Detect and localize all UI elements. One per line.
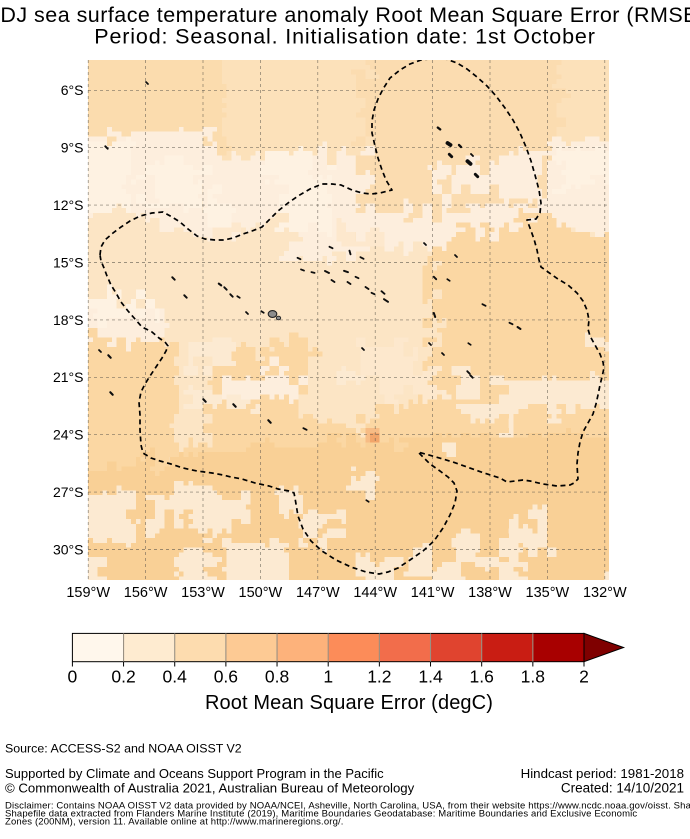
svg-text:0.4: 0.4	[163, 666, 188, 686]
svg-text:Zones (200NM), version 11. Ava: Zones (200NM), version 11. Available onl…	[5, 816, 344, 827]
svg-text:0.2: 0.2	[111, 666, 135, 686]
svg-text:138°W: 138°W	[468, 585, 512, 601]
svg-text:147°W: 147°W	[296, 585, 340, 601]
svg-text:132°W: 132°W	[583, 585, 627, 601]
svg-text:0.8: 0.8	[265, 666, 289, 686]
svg-text:Created: 14/10/2021: Created: 14/10/2021	[561, 780, 684, 795]
svg-text:1.8: 1.8	[521, 666, 545, 686]
svg-text:18°S: 18°S	[53, 312, 84, 328]
svg-text:27°S: 27°S	[53, 484, 84, 500]
svg-text:Supported by Climate and Ocean: Supported by Climate and Oceans Support …	[5, 766, 384, 781]
svg-text:30°S: 30°S	[53, 541, 84, 557]
svg-text:1.4: 1.4	[418, 666, 443, 686]
svg-text:159°W: 159°W	[66, 585, 110, 601]
svg-text:156°W: 156°W	[124, 585, 168, 601]
svg-text:6°S: 6°S	[61, 82, 84, 98]
svg-text:0: 0	[68, 666, 78, 686]
svg-text:2: 2	[579, 666, 589, 686]
svg-text:Source: ACCESS-S2 and NOAA OIS: Source: ACCESS-S2 and NOAA OISST V2	[5, 741, 242, 755]
svg-text:Hindcast period: 1981-2018: Hindcast period: 1981-2018	[521, 766, 684, 781]
svg-text:135°W: 135°W	[526, 585, 570, 601]
svg-text:9°S: 9°S	[61, 140, 84, 156]
svg-text:24°S: 24°S	[53, 427, 84, 443]
svg-text:© Commonwealth of Australia 20: © Commonwealth of Australia 2021, Austra…	[5, 780, 415, 795]
svg-text:NDJ sea surface temperature an: NDJ sea surface temperature anomaly Root…	[0, 3, 690, 27]
svg-text:Period: Seasonal. Initialisati: Period: Seasonal. Initialisation date: 1…	[94, 25, 595, 49]
svg-text:Root Mean Square Error (degC): Root Mean Square Error (degC)	[205, 692, 493, 714]
svg-text:21°S: 21°S	[53, 369, 84, 385]
svg-text:1.6: 1.6	[470, 666, 494, 686]
svg-text:1: 1	[323, 666, 333, 686]
svg-text:144°W: 144°W	[353, 585, 397, 601]
svg-text:0.6: 0.6	[214, 666, 238, 686]
svg-text:15°S: 15°S	[53, 254, 84, 270]
svg-text:153°W: 153°W	[181, 585, 225, 601]
svg-text:141°W: 141°W	[411, 585, 455, 601]
svg-text:1.2: 1.2	[367, 666, 391, 686]
svg-text:12°S: 12°S	[53, 197, 84, 213]
svg-text:150°W: 150°W	[239, 585, 283, 601]
